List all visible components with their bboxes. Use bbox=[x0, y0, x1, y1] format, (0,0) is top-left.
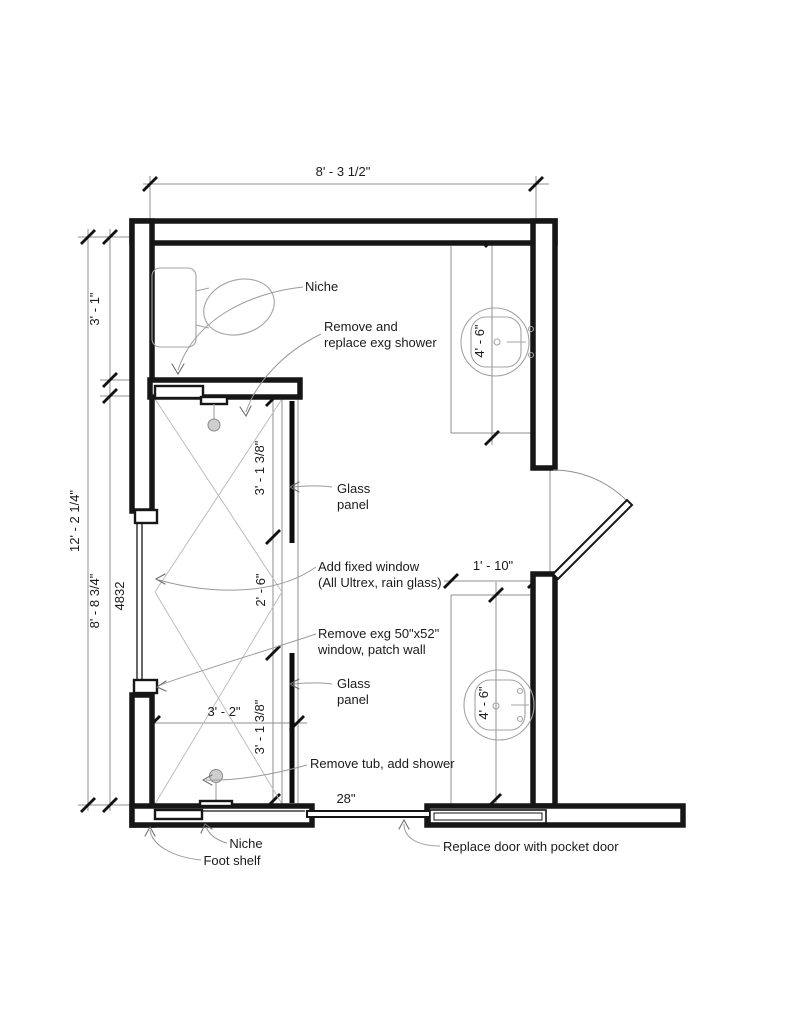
dim-glass-upper: 3' - 1 3/8" bbox=[252, 440, 267, 495]
leader-niche-bottom bbox=[206, 827, 227, 843]
wall-right-lower bbox=[533, 574, 555, 806]
leader-glass-upper bbox=[293, 486, 332, 487]
label-glass-lower-1: Glass bbox=[337, 676, 371, 691]
label-remove-tub: Remove tub, add shower bbox=[310, 756, 455, 771]
swing-door bbox=[553, 470, 632, 579]
dim-window-size: 4832 bbox=[112, 582, 127, 611]
dim-left-lower: 8' - 8 3/4" bbox=[87, 573, 102, 628]
shower-head-upper-rose bbox=[208, 419, 220, 431]
toilet-bowl bbox=[196, 270, 281, 344]
label-remove-window-2: window, patch wall bbox=[317, 642, 426, 657]
dim-left-total: 12' - 2 1/4" bbox=[67, 490, 82, 552]
dim-shower-opening: 2' - 6" bbox=[253, 573, 268, 606]
leader-glass-lower bbox=[293, 683, 332, 684]
sink-upper-drain bbox=[494, 339, 500, 345]
label-pocket-door: Replace door with pocket door bbox=[443, 839, 619, 854]
door-leaf bbox=[553, 500, 632, 579]
pocket-door-pocket bbox=[430, 810, 546, 823]
window-jamb-bottom bbox=[134, 680, 157, 693]
niche-bottom-recess bbox=[155, 810, 202, 819]
wall-left-upper bbox=[132, 221, 152, 511]
window-jamb-top bbox=[135, 510, 157, 523]
leader-shower bbox=[246, 334, 321, 412]
label-glass-lower-2: panel bbox=[337, 692, 369, 707]
wall-right-upper bbox=[533, 221, 555, 468]
label-glass-upper-2: panel bbox=[337, 497, 369, 512]
dim-vanity-lower: 4' - 6" bbox=[476, 686, 491, 719]
dim-counter-depth: 1' - 10" bbox=[473, 558, 514, 573]
label-foot-shelf: Foot shelf bbox=[203, 853, 260, 868]
label-glass-upper-1: Glass bbox=[337, 481, 371, 496]
door-swing-arc bbox=[553, 470, 626, 500]
wall-top bbox=[132, 221, 555, 243]
dim-vanity-upper: 4' - 6" bbox=[472, 324, 487, 357]
label-niche-bottom: Niche bbox=[229, 836, 262, 851]
label-add-window-1: Add fixed window bbox=[318, 559, 420, 574]
dim-shower-width: 3' - 2" bbox=[207, 704, 240, 719]
dim-glass-lower: 3' - 1 3/8" bbox=[252, 699, 267, 754]
floor-plan-canvas: 8' - 3 1/2" 12' - 2 1/4" 3' - 1" 8' - 8 … bbox=[0, 0, 791, 1024]
label-shower-2: replace exg shower bbox=[324, 335, 437, 350]
leader-add-window bbox=[159, 567, 316, 590]
floor-plan-drawing: 8' - 3 1/2" 12' - 2 1/4" 3' - 1" 8' - 8 … bbox=[0, 0, 791, 1024]
leader-foot-shelf bbox=[150, 830, 201, 860]
dim-left-upper: 3' - 1" bbox=[87, 292, 102, 325]
pocket-door-leaf bbox=[307, 811, 430, 817]
sink-lower bbox=[464, 670, 534, 740]
dim-door-width: 28" bbox=[336, 791, 355, 806]
dim-top-width: 8' - 3 1/2" bbox=[316, 164, 371, 179]
label-shower-1: Remove and bbox=[324, 319, 398, 334]
toilet bbox=[152, 268, 282, 347]
niche-top-recess bbox=[155, 386, 203, 398]
toilet-tank bbox=[152, 268, 196, 347]
label-niche-top: Niche bbox=[305, 279, 338, 294]
label-remove-window-1: Remove exg 50"x52" bbox=[318, 626, 440, 641]
walls bbox=[132, 221, 683, 825]
label-add-window-2: (All Ultrex, rain glass) bbox=[318, 575, 442, 590]
shower-head-upper bbox=[201, 397, 227, 431]
shower-head-lower bbox=[200, 770, 232, 807]
window-4832 bbox=[134, 510, 157, 693]
